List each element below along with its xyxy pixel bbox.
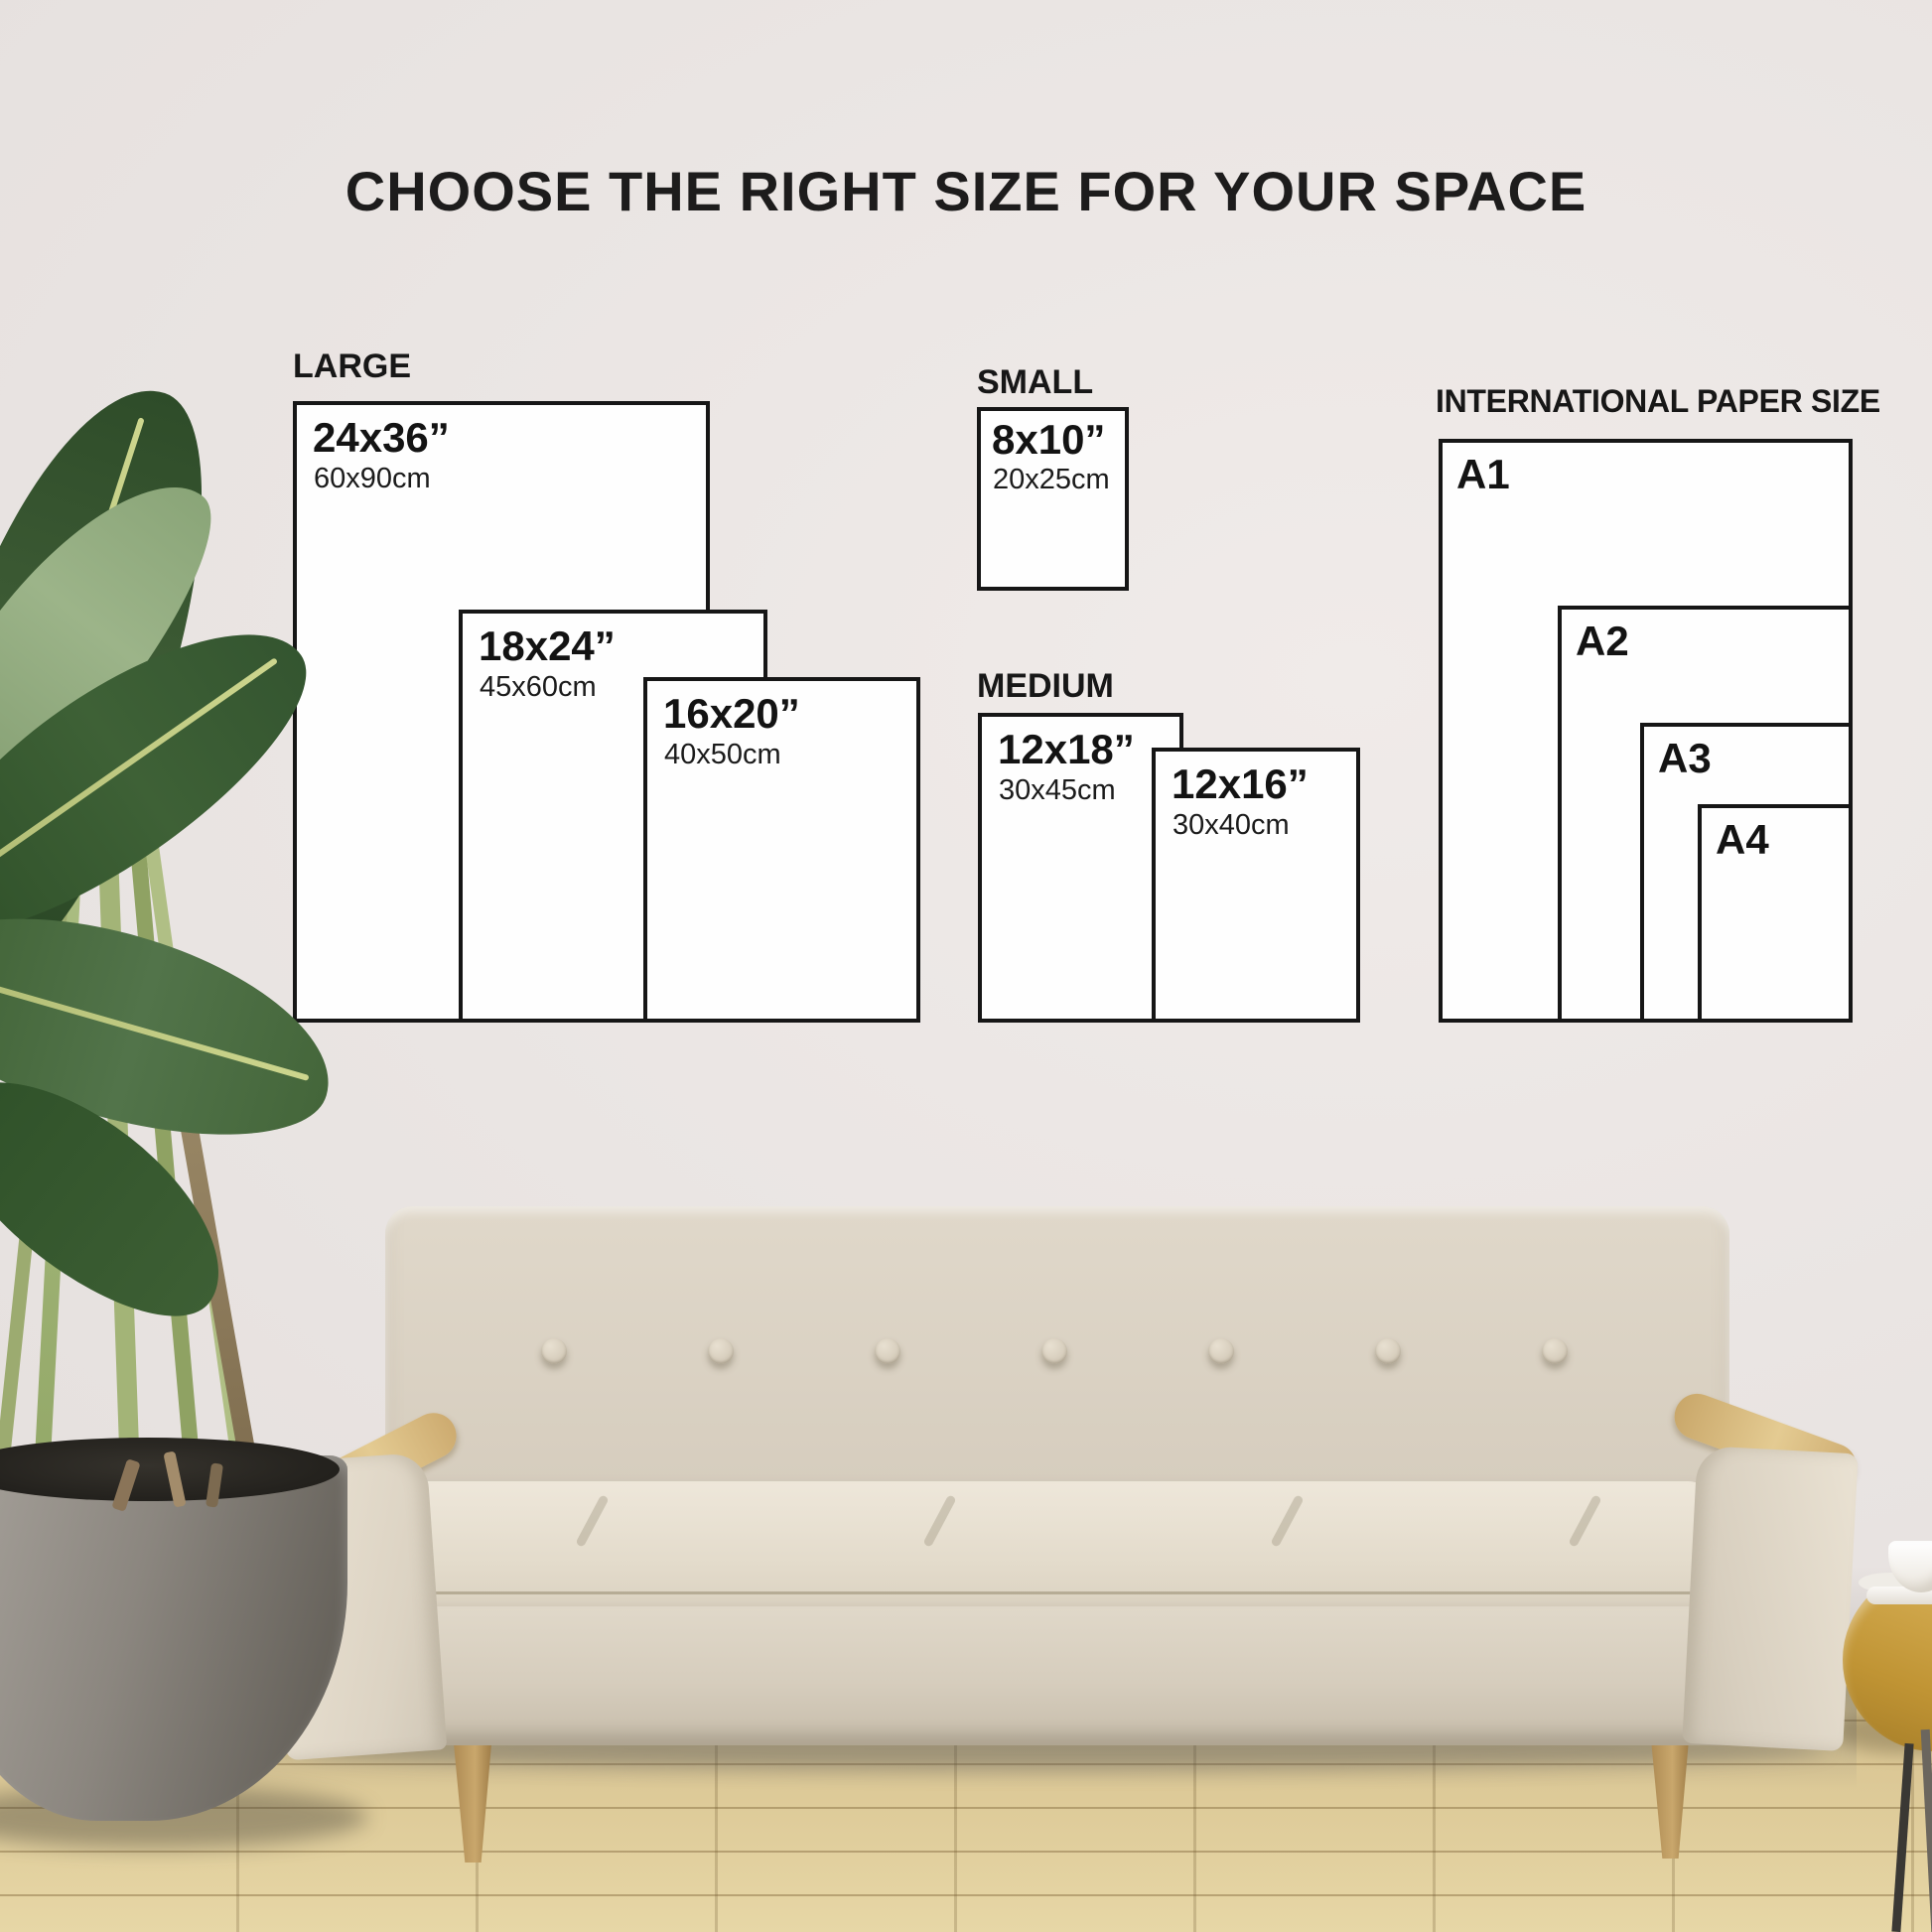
sofa-tuft-button [875, 1338, 900, 1364]
group-label-international: INTERNATIONAL PAPER SIZE [1436, 383, 1880, 420]
group-label-large: LARGE [293, 347, 411, 386]
size-label-inches: 16x20” [663, 691, 916, 737]
group-label-medium: MEDIUM [977, 667, 1114, 706]
size-box-12x16: 12x16” 30x40cm [1152, 748, 1360, 1023]
size-box-16x20: 16x20” 40x50cm [643, 677, 920, 1023]
size-box-8x10: 8x10” 20x25cm [977, 407, 1129, 591]
size-label-a4: A4 [1716, 816, 1849, 864]
page-title: CHOOSE THE RIGHT SIZE FOR YOUR SPACE [0, 159, 1932, 223]
size-label-cm: 40x50cm [664, 739, 916, 771]
sofa-tuft-button [1542, 1338, 1568, 1364]
sofa-tuft-button [708, 1338, 734, 1364]
seat-dimple [1270, 1494, 1304, 1548]
size-label-cm: 20x25cm [993, 464, 1125, 496]
size-label-cm: 60x90cm [314, 463, 706, 495]
seat-dimple [1568, 1494, 1601, 1548]
sofa-tuft-button [1375, 1338, 1401, 1364]
seat-piping-seam [314, 1591, 1716, 1594]
room-scene: CHOOSE THE RIGHT SIZE FOR YOUR SPACE LAR… [0, 0, 1932, 1932]
size-label-inches: 8x10” [992, 417, 1125, 463]
size-label-a3: A3 [1658, 735, 1849, 782]
size-label-inches: 24x36” [313, 415, 706, 461]
seat-dimple [922, 1494, 956, 1548]
size-box-a4: A4 [1698, 804, 1853, 1023]
sofa-tuft-button [1208, 1338, 1234, 1364]
seat-dimple [575, 1494, 609, 1548]
size-label-a2: A2 [1576, 618, 1849, 665]
sofa-seat-cushion [300, 1481, 1729, 1618]
group-label-small: SMALL [977, 363, 1093, 402]
sofa-right-arm [1682, 1446, 1858, 1751]
size-label-inches: 18x24” [479, 623, 763, 669]
leaf-midrib [0, 963, 309, 1081]
size-label-inches: 12x16” [1172, 761, 1356, 807]
sofa-tuft-button [541, 1338, 567, 1364]
size-label-a1: A1 [1456, 451, 1849, 498]
sofa-base [291, 1606, 1836, 1745]
size-label-cm: 30x40cm [1173, 809, 1356, 842]
sofa-tuft-button [1041, 1338, 1067, 1364]
